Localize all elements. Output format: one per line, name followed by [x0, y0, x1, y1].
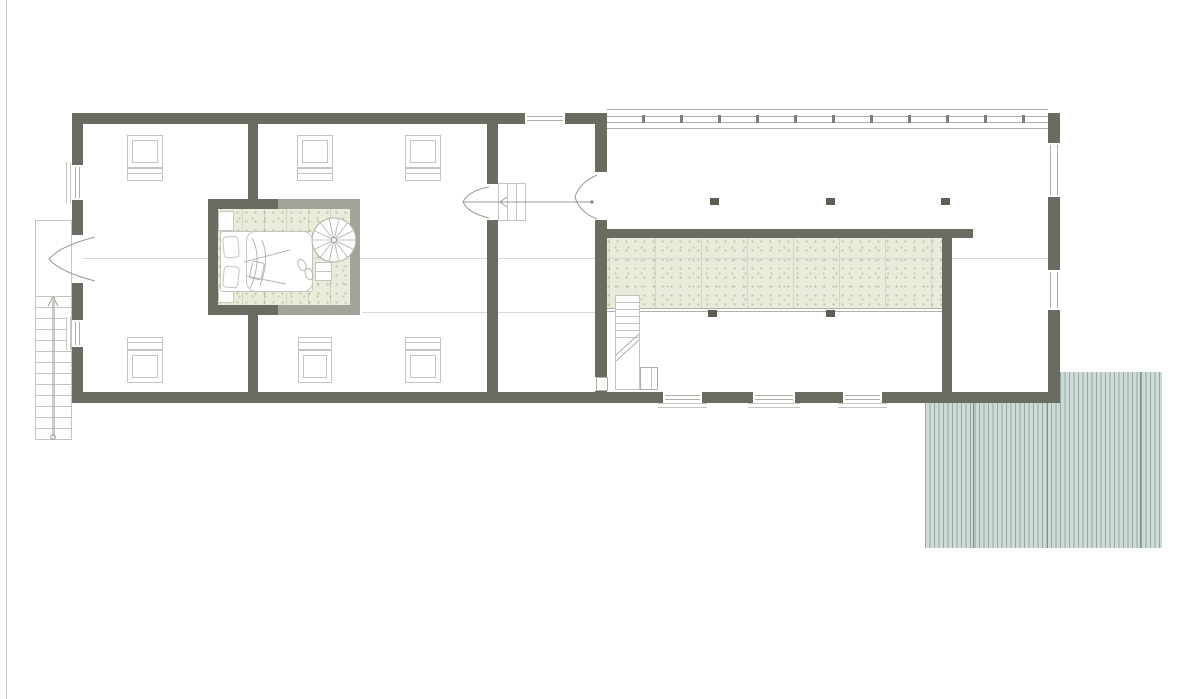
- partition-wall-hall-east: [595, 124, 607, 172]
- exterior-wall-south: [702, 392, 753, 403]
- south-window-2-sill: [748, 403, 800, 408]
- closet-line: [651, 368, 652, 389]
- roof-window-pane: [410, 355, 436, 378]
- mezzanine-carpet: [607, 238, 942, 308]
- stair-rail: [54, 296, 55, 439]
- west-window-1-frame: [79, 167, 80, 198]
- roof-window-sill: [298, 337, 332, 350]
- facade-mullion: [642, 115, 645, 123]
- exterior-wall-south: [795, 392, 843, 403]
- exterior-wall-north: [72, 113, 525, 124]
- glazed-facade-line: [607, 122, 1048, 123]
- step-tread: [516, 184, 517, 220]
- exterior-wall-east: [1048, 113, 1060, 143]
- facade-mullion: [680, 115, 683, 123]
- north-window-frame: [527, 116, 563, 117]
- facade-mullion: [832, 115, 835, 123]
- exterior-wall-west: [72, 113, 83, 165]
- glazed-facade-line: [607, 116, 1048, 117]
- roof-window-sill: [405, 337, 441, 350]
- stair-tread: [616, 337, 639, 338]
- bedroom-wall-top: [208, 199, 278, 209]
- south-window-1-frame: [665, 395, 700, 396]
- column: [708, 310, 717, 317]
- column: [941, 198, 950, 205]
- roof-window-pane: [132, 140, 158, 163]
- east-window-2-frame: [1057, 272, 1058, 308]
- bedroom-hall-door: [487, 184, 498, 220]
- south-window-3-sill: [838, 403, 887, 408]
- glazed-facade-line: [607, 109, 1048, 110]
- roof-window-pane: [303, 355, 327, 378]
- interior-staircase: [615, 295, 640, 390]
- facade-mullion: [756, 115, 759, 123]
- partition-wall-hall-east: [595, 220, 607, 377]
- roof-window-sill: [127, 337, 163, 350]
- stair-tread: [36, 439, 71, 440]
- hall-living-door: [595, 172, 607, 220]
- west-window-2: [72, 320, 83, 347]
- pillow: [222, 265, 240, 288]
- partition-wall-hall-west: [487, 220, 498, 392]
- exterior-wall-north: [565, 113, 607, 124]
- facade-mullion: [794, 115, 797, 123]
- bedroom-wall-bottom: [208, 305, 278, 315]
- duvet: [246, 231, 313, 292]
- deck-board-joint: [1140, 372, 1141, 548]
- glazed-facade-line: [607, 128, 1048, 129]
- south-window-3-frame: [845, 399, 880, 400]
- roof-window-pane: [410, 140, 436, 163]
- south-window-2-frame: [755, 399, 793, 400]
- facade-mullion: [984, 115, 987, 123]
- east-window-1: [1047, 143, 1061, 197]
- partition-wall: [248, 315, 258, 392]
- bedroom-glass-top: [278, 199, 360, 209]
- stair-tread: [616, 309, 639, 310]
- west-entry-door: [72, 235, 83, 283]
- roof-window: [405, 135, 441, 168]
- stair-tread: [616, 330, 639, 331]
- stair-tread: [616, 323, 639, 324]
- facade-mullion: [870, 115, 873, 123]
- partition-wall-hall-east: [595, 391, 607, 403]
- column: [826, 198, 835, 205]
- north-window: [525, 113, 565, 124]
- north-window-frame: [527, 120, 563, 121]
- east-window-2-frame: [1050, 272, 1051, 308]
- roof-window-sill: [405, 168, 441, 181]
- roof-window-sill-line: [406, 173, 440, 174]
- west-window-2-frame: [75, 322, 76, 345]
- exterior-wall-east: [1048, 197, 1060, 270]
- pillow: [222, 235, 240, 258]
- wardrobe: [218, 211, 234, 231]
- east-window-1-frame: [1057, 145, 1058, 195]
- roof-window: [298, 350, 332, 383]
- hallway-steps: [498, 183, 526, 221]
- roof-window: [297, 135, 333, 168]
- roof-window-pane: [132, 355, 158, 378]
- stair-tread: [616, 316, 639, 317]
- partition-wall-hall-west: [487, 124, 498, 184]
- balustrade-line: [607, 311, 942, 312]
- balustrade-line: [607, 308, 942, 309]
- exterior-wall-west: [72, 347, 83, 392]
- bedroom-wall-left: [208, 199, 218, 315]
- attic-floor-line: [362, 312, 595, 313]
- east-window-2: [1047, 270, 1061, 310]
- partition-wall: [248, 124, 258, 199]
- west-window-2-frame: [79, 322, 80, 345]
- roof-window: [127, 350, 163, 383]
- page-edge-line: [6, 0, 7, 699]
- west-window-1-frame: [75, 167, 76, 198]
- south-window-1-frame: [665, 399, 700, 400]
- exterior-wall-east: [1048, 310, 1060, 403]
- roof-window-sill-line: [128, 342, 162, 343]
- roof-window-pane: [302, 140, 328, 163]
- south-window-2: [753, 392, 795, 403]
- stair-tread: [616, 302, 639, 303]
- south-window-3: [843, 392, 882, 403]
- roof-window-sill-line: [406, 342, 440, 343]
- exterior-wall-west: [72, 200, 83, 235]
- column: [710, 198, 719, 205]
- south-window-2-frame: [755, 395, 793, 396]
- south-window-1-sill: [658, 403, 707, 408]
- roof-window: [127, 135, 163, 168]
- exterior-wall-west: [72, 283, 83, 320]
- facade-mullion: [946, 115, 949, 123]
- west-window-1-sill: [66, 162, 71, 203]
- facade-mullion: [1022, 115, 1025, 123]
- south-window-1: [663, 392, 702, 403]
- step-tread: [525, 184, 526, 220]
- facade-mullion: [908, 115, 911, 123]
- bedroom-glass-right: [350, 199, 360, 315]
- facade-mullion: [718, 115, 721, 123]
- floor-plan: [0, 0, 1202, 699]
- south-window-3-frame: [845, 395, 880, 396]
- roof-window-sill: [297, 168, 333, 181]
- east-window-1-frame: [1050, 145, 1051, 195]
- mezzanine-wall-right: [942, 238, 952, 392]
- understair-closet: [640, 367, 658, 390]
- west-window-1: [72, 165, 83, 200]
- mezzanine-wall-top: [607, 229, 973, 238]
- roof-window-sill: [127, 168, 163, 181]
- spiral-stair-landing-step: [315, 271, 332, 281]
- roof-window-sill-line: [128, 173, 162, 174]
- column: [826, 310, 835, 317]
- roof-window-sill-line: [298, 173, 332, 174]
- step-tread: [507, 184, 508, 220]
- exterior-wall-south: [72, 392, 663, 403]
- west-window-2-sill: [66, 317, 71, 350]
- bedroom-glass-bottom: [278, 305, 360, 315]
- exterior-wall-south: [882, 392, 1060, 403]
- roof-window: [405, 350, 441, 383]
- hall-lower-door: [596, 377, 608, 391]
- roof-window-sill-line: [299, 342, 331, 343]
